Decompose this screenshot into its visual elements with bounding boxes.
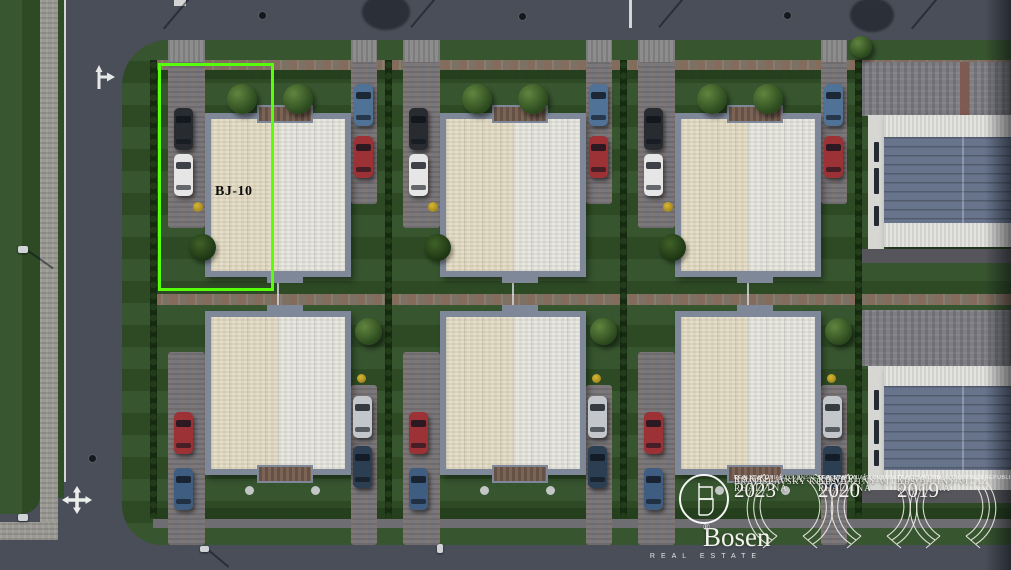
curb-apron xyxy=(586,40,612,63)
lamp-post-base xyxy=(437,544,443,553)
hall-window xyxy=(874,142,879,162)
streetlight-lamp xyxy=(200,546,209,552)
car xyxy=(644,412,663,454)
car xyxy=(644,154,663,196)
garden-tree xyxy=(590,318,617,345)
car xyxy=(824,84,843,126)
duplex-house xyxy=(440,113,586,277)
gravel-border xyxy=(884,115,1011,137)
car xyxy=(353,446,372,488)
car xyxy=(354,136,373,178)
fence xyxy=(385,60,392,518)
fence xyxy=(855,60,862,518)
curb-apron xyxy=(168,40,205,63)
hall-window xyxy=(874,168,879,194)
streetlight-lamp xyxy=(18,514,28,521)
garden-tree xyxy=(355,318,382,345)
street-tree xyxy=(850,36,872,58)
entrance-paving xyxy=(727,465,783,483)
duplex-house xyxy=(440,311,586,475)
flower-bush xyxy=(827,374,836,383)
middle-walkway xyxy=(153,294,1011,305)
car xyxy=(174,412,193,454)
highlighted-plot-bj10[interactable] xyxy=(158,63,274,291)
rear-walkway xyxy=(153,519,1011,528)
crossroad-arrow-marking xyxy=(62,486,92,514)
car xyxy=(589,84,608,126)
hall-metal-roof xyxy=(884,137,1011,223)
manhole xyxy=(89,455,96,462)
roof-left-unit xyxy=(681,119,748,271)
hall-terrace xyxy=(862,490,1011,503)
curb-apron xyxy=(638,40,675,63)
hall-window xyxy=(874,450,879,466)
garden-tree xyxy=(462,84,492,114)
car xyxy=(589,136,608,178)
garden-tree xyxy=(753,84,783,114)
curb-apron xyxy=(351,40,377,63)
garden-bush xyxy=(659,234,686,261)
porch-tab xyxy=(502,305,538,312)
straight-right-arrow-marking xyxy=(94,64,116,90)
hall-courtyard xyxy=(862,310,1011,366)
manhole xyxy=(519,13,526,20)
manhole xyxy=(259,12,266,19)
roof-ridge xyxy=(962,137,964,223)
car xyxy=(409,412,428,454)
stepping-stone xyxy=(480,486,489,495)
car xyxy=(588,446,607,488)
hall-window xyxy=(874,420,879,444)
roof-left-unit xyxy=(446,317,513,469)
car xyxy=(644,468,663,510)
flower-bush xyxy=(663,202,673,212)
aerial-site-render: BJ-10 Bosen® REAL ESTATE R xyxy=(0,0,1011,570)
stepping-stone xyxy=(715,486,724,495)
roof-left-unit xyxy=(446,119,513,271)
fence xyxy=(150,60,157,518)
streetlight-lamp xyxy=(18,246,28,253)
porch-tab xyxy=(737,305,773,312)
hall-metal-roof xyxy=(884,386,1011,470)
hall-building xyxy=(884,366,1011,490)
car xyxy=(823,446,842,488)
car xyxy=(354,84,373,126)
car xyxy=(409,468,428,510)
car xyxy=(823,396,842,438)
fence xyxy=(620,60,627,518)
car xyxy=(409,108,428,150)
car xyxy=(588,396,607,438)
roof-right-unit xyxy=(748,119,815,271)
roof-left-unit xyxy=(211,317,278,469)
entrance-paving xyxy=(257,465,313,483)
lane-line xyxy=(629,0,632,28)
stepping-stone xyxy=(311,486,320,495)
roof-right-unit xyxy=(278,119,345,271)
curb-apron xyxy=(403,40,440,63)
garden-tree xyxy=(697,84,727,114)
garden-tree xyxy=(283,84,313,114)
plot-label: BJ-10 xyxy=(215,184,253,200)
car xyxy=(644,108,663,150)
garden-tree xyxy=(518,84,548,114)
duplex-house xyxy=(675,113,821,277)
curb-apron xyxy=(821,40,847,63)
garden-tree xyxy=(825,318,852,345)
entrance-paving xyxy=(492,465,548,483)
flower-bush xyxy=(357,374,366,383)
flower-bush xyxy=(428,202,438,212)
gravel-border xyxy=(884,223,1011,247)
roof-ridge xyxy=(962,386,964,470)
porch-tab xyxy=(737,276,773,283)
stepping-stone xyxy=(245,486,254,495)
manhole xyxy=(784,12,791,19)
roof-right-unit xyxy=(513,317,580,469)
roof-right-unit xyxy=(513,119,580,271)
hall-building xyxy=(884,115,1011,247)
garden-bush xyxy=(424,234,451,261)
duplex-house xyxy=(675,311,821,475)
car xyxy=(174,468,193,510)
hall-terrace xyxy=(862,249,1011,263)
car xyxy=(409,154,428,196)
gravel-border xyxy=(884,366,1011,386)
hall-window xyxy=(874,206,879,226)
hall-courtyard xyxy=(862,62,1011,116)
duplex-house xyxy=(205,311,351,475)
stepping-stone xyxy=(781,486,790,495)
gravel-border xyxy=(884,470,1011,490)
porch-tab xyxy=(267,305,303,312)
roof-right-unit xyxy=(748,317,815,469)
hall-window xyxy=(874,390,879,410)
porch-tab xyxy=(502,276,538,283)
roof-left-unit xyxy=(681,317,748,469)
stepping-stone xyxy=(546,486,555,495)
roof-right-unit xyxy=(278,317,345,469)
flower-bush xyxy=(592,374,601,383)
car xyxy=(353,396,372,438)
courtyard-path xyxy=(960,62,969,116)
car xyxy=(824,136,843,178)
